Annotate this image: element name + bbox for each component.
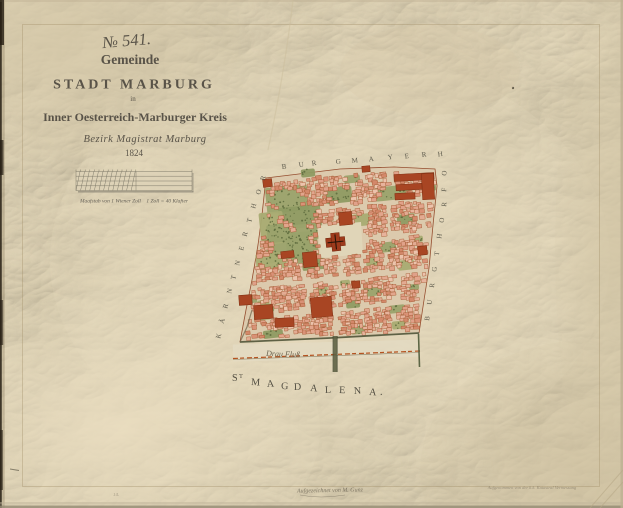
svg-text:in: in <box>130 95 136 103</box>
svg-text:Aufgezeichnet von M. Gunz: Aufgezeichnet von M. Gunz <box>296 486 364 494</box>
svg-text:G: G <box>430 266 439 272</box>
svg-text:1824: 1824 <box>125 148 144 158</box>
svg-text:Inner Oesterreich-Marburger Kr: Inner Oesterreich-Marburger Kreis <box>43 110 227 124</box>
svg-text:G: G <box>281 381 289 392</box>
svg-text:Maafstab von 1 Wiener Zoll: Maafstab von 1 Wiener Zoll 1 Zoll = 40 K… <box>79 200 188 205</box>
svg-text:U: U <box>298 160 304 169</box>
svg-text:E: E <box>339 385 346 396</box>
svg-text:S: S <box>232 373 238 384</box>
svg-text:Bezirk Magistrat Marburg: Bezirk Magistrat Marburg <box>83 134 206 145</box>
svg-text:Y: Y <box>387 153 393 162</box>
svg-text:G: G <box>335 157 341 166</box>
svg-text:N: N <box>354 386 363 397</box>
svg-text:Drau Fluß: Drau Fluß <box>265 349 300 359</box>
svg-text:D: D <box>294 382 302 393</box>
svg-text:A: A <box>368 155 374 164</box>
svg-text:T: T <box>239 373 243 380</box>
svg-text:A: A <box>369 387 378 398</box>
svg-text:.: . <box>380 387 383 398</box>
svg-text:H: H <box>437 150 443 159</box>
svg-text:M: M <box>251 377 261 388</box>
svg-text:14.: 14. <box>113 493 119 498</box>
svg-text:STADT MARBURG: STADT MARBURG <box>53 78 215 93</box>
svg-text:Gemeinde: Gemeinde <box>101 52 160 67</box>
svg-text:L: L <box>325 385 332 396</box>
svg-text:Aufgenommen von der k.k. Katas: Aufgenommen von der k.k. Katastral Verme… <box>487 485 577 490</box>
